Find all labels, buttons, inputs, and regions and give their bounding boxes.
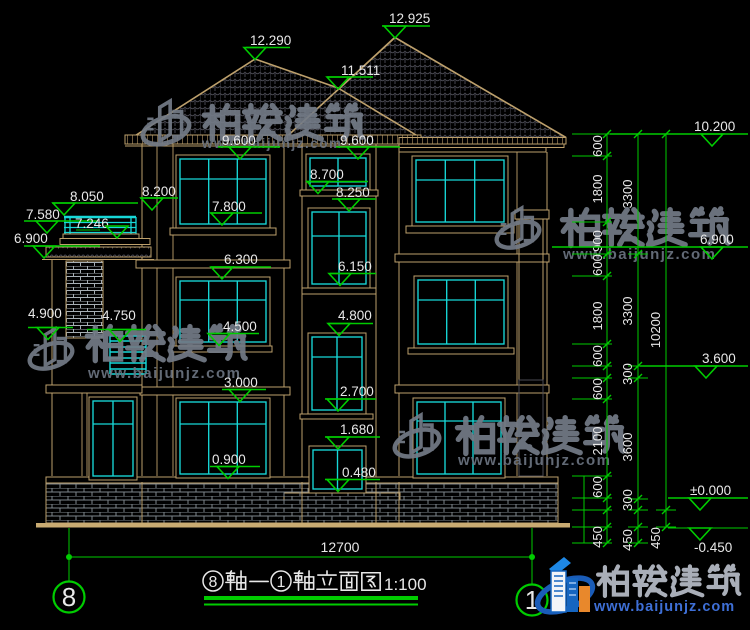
svg-text:600: 600: [590, 378, 605, 400]
svg-text:8: 8: [62, 582, 76, 612]
svg-text:10.200: 10.200: [694, 119, 735, 134]
svg-text:0.480: 0.480: [342, 465, 376, 480]
svg-text:1: 1: [277, 574, 286, 591]
svg-text:12.925: 12.925: [389, 11, 430, 26]
svg-text:12.290: 12.290: [250, 33, 291, 48]
svg-text:11.511: 11.511: [341, 63, 380, 78]
svg-text:300: 300: [620, 363, 635, 385]
svg-text:4.750: 4.750: [102, 308, 136, 323]
svg-text:8.250: 8.250: [336, 185, 370, 200]
svg-text:450: 450: [648, 527, 663, 549]
svg-text:www.baijunjz.com: www.baijunjz.com: [593, 599, 735, 615]
svg-text:4.900: 4.900: [28, 306, 62, 321]
svg-text:6.900: 6.900: [700, 232, 734, 247]
svg-text:2.700: 2.700: [340, 384, 374, 399]
svg-text:600: 600: [590, 345, 605, 367]
svg-text:300: 300: [620, 489, 635, 511]
svg-text:450: 450: [620, 529, 635, 551]
svg-text:450: 450: [590, 526, 605, 548]
svg-text:8: 8: [209, 574, 218, 591]
svg-text:www.baijunjz.com: www.baijunjz.com: [457, 452, 611, 469]
svg-text:10200: 10200: [648, 312, 663, 348]
svg-text:6.150: 6.150: [338, 259, 372, 274]
svg-text:3.000: 3.000: [224, 375, 258, 390]
svg-text:600: 600: [590, 476, 605, 498]
svg-text:3300: 3300: [620, 180, 635, 209]
svg-text:4.500: 4.500: [223, 319, 257, 334]
svg-text:3.600: 3.600: [702, 351, 736, 366]
svg-text:±0.000: ±0.000: [690, 483, 731, 498]
svg-text:1800: 1800: [590, 175, 605, 204]
svg-text:6.900: 6.900: [14, 231, 48, 246]
svg-text:3300: 3300: [620, 297, 635, 326]
svg-text:1:100: 1:100: [384, 575, 427, 594]
svg-text:9.600: 9.600: [340, 133, 374, 148]
svg-text:9.600: 9.600: [222, 133, 256, 148]
svg-text:7.246: 7.246: [75, 216, 109, 231]
svg-text:-0.450: -0.450: [694, 540, 732, 555]
svg-text:12700: 12700: [321, 539, 360, 555]
svg-text:8.200: 8.200: [142, 184, 176, 199]
svg-text:4.800: 4.800: [338, 308, 372, 323]
svg-text:www.baijunjz.com: www.baijunjz.com: [87, 365, 241, 382]
svg-text:600: 600: [590, 135, 605, 157]
svg-text:600: 600: [590, 254, 605, 276]
svg-text:6.300: 6.300: [224, 252, 258, 267]
svg-text:8.700: 8.700: [310, 167, 344, 182]
svg-text:1.680: 1.680: [340, 422, 374, 437]
svg-text:900: 900: [590, 230, 605, 252]
svg-text:7.800: 7.800: [212, 199, 246, 214]
svg-text:3600: 3600: [620, 433, 635, 462]
svg-text:7.580: 7.580: [26, 207, 60, 222]
svg-text:8.050: 8.050: [70, 189, 104, 204]
svg-text:0.900: 0.900: [212, 452, 246, 467]
svg-text:1800: 1800: [590, 302, 605, 331]
svg-text:2100: 2100: [590, 427, 605, 456]
